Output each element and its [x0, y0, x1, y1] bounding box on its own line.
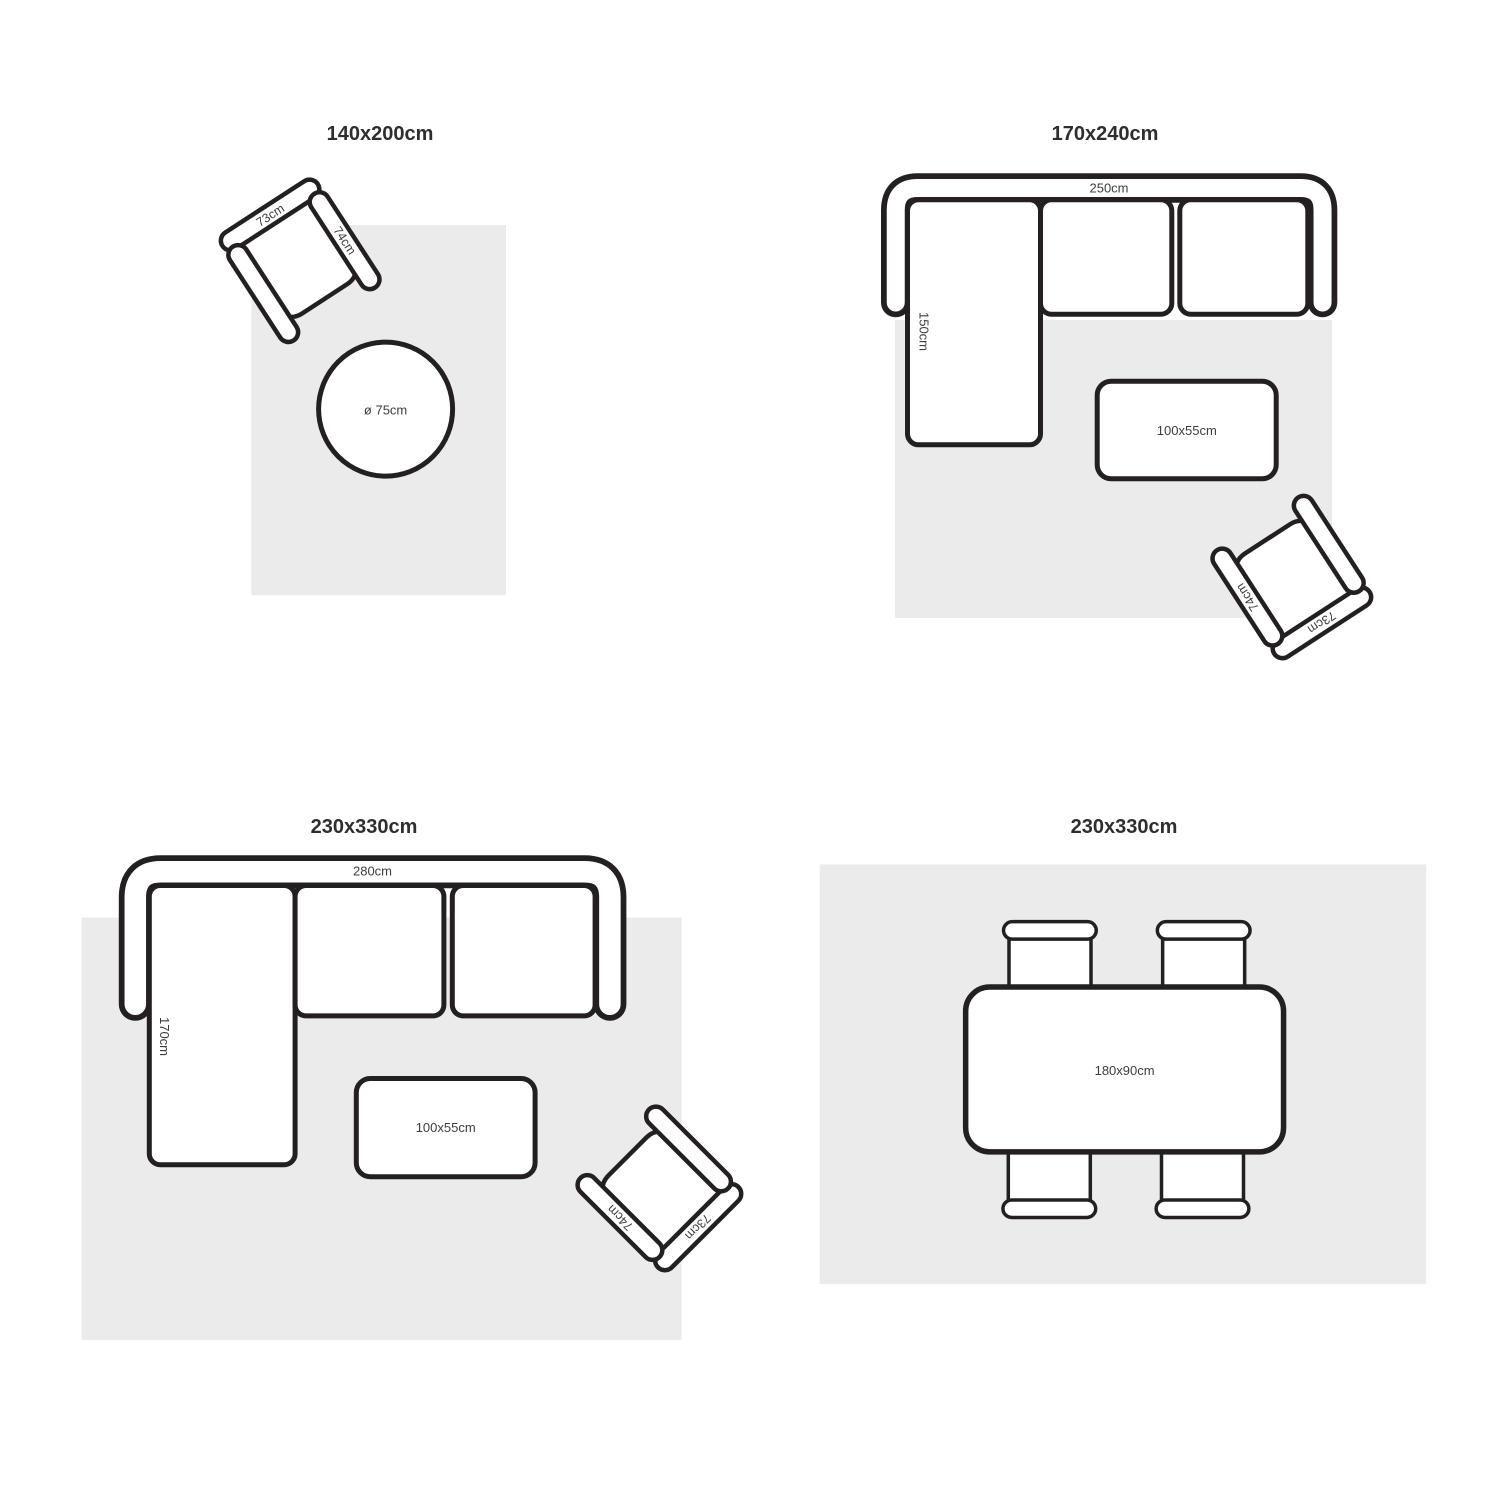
svg-text:ø 75cm: ø 75cm: [364, 403, 407, 418]
svg-text:140x200cm: 140x200cm: [327, 123, 434, 145]
svg-text:170x240cm: 170x240cm: [1052, 123, 1159, 145]
svg-text:280cm: 280cm: [353, 864, 392, 879]
svg-text:170cm: 170cm: [157, 1017, 172, 1056]
svg-text:230x330cm: 230x330cm: [1071, 816, 1178, 838]
svg-text:150cm: 150cm: [917, 312, 932, 351]
svg-text:180x90cm: 180x90cm: [1095, 1063, 1155, 1078]
svg-text:250cm: 250cm: [1089, 181, 1128, 196]
svg-text:100x55cm: 100x55cm: [416, 1120, 476, 1135]
svg-text:230x330cm: 230x330cm: [311, 816, 418, 838]
svg-text:100x55cm: 100x55cm: [1157, 423, 1217, 438]
